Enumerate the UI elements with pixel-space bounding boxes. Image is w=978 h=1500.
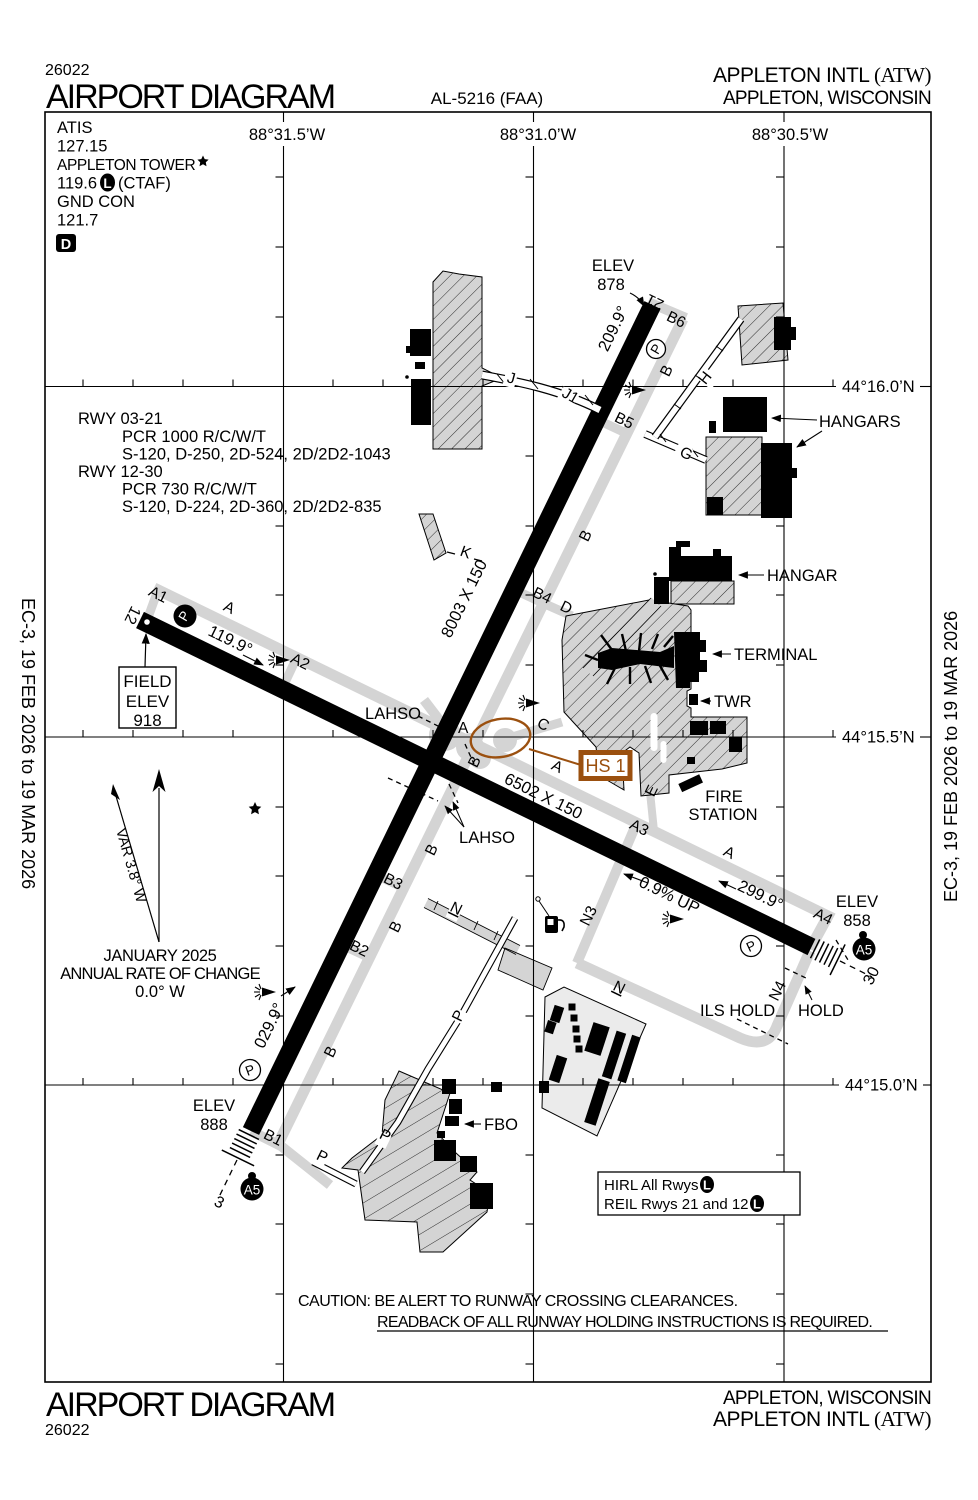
- svg-text:RWY 12-30: RWY 12-30: [78, 463, 163, 481]
- svg-text:ILS HOLD: ILS HOLD: [700, 1002, 775, 1020]
- svg-text:FBO: FBO: [484, 1116, 518, 1134]
- svg-text:LAHSO: LAHSO: [459, 829, 515, 847]
- svg-text:ATIS: ATIS: [57, 119, 92, 137]
- svg-text:ELEV: ELEV: [836, 893, 878, 911]
- svg-text:A5: A5: [244, 1183, 261, 1198]
- svg-text:ANNUAL RATE OF CHANGE: ANNUAL RATE OF CHANGE: [60, 965, 260, 983]
- svg-text:26022: 26022: [45, 62, 90, 79]
- svg-text:EC-3, 19 FEB 2026 to 19 MAR: EC-3, 19 FEB 2026 to 19 MAR 2026: [941, 611, 961, 902]
- svg-text:EC-3, 19 FEB 2026 to 19 MAR: EC-3, 19 FEB 2026 to 19 MAR 2026: [18, 598, 38, 889]
- svg-text:JANUARY 2025: JANUARY 2025: [104, 947, 217, 965]
- svg-text:127.15: 127.15: [57, 138, 107, 156]
- svg-text:AIRPORT DIAGRAM: AIRPORT DIAGRAM: [46, 1386, 334, 1424]
- svg-text:FIRE: FIRE: [705, 788, 743, 806]
- svg-text:TWR: TWR: [714, 693, 752, 711]
- svg-text:HANGAR: HANGAR: [767, 567, 838, 585]
- svg-text:HS 1: HS 1: [585, 756, 625, 776]
- svg-text:L: L: [703, 1178, 711, 1193]
- svg-text:858: 858: [843, 912, 871, 930]
- svg-text:ELEV: ELEV: [193, 1097, 235, 1115]
- svg-text:READBACK OF ALL RUNWAY HOLDING: READBACK OF ALL RUNWAY HOLDING INSTRUCTI…: [377, 1314, 872, 1331]
- svg-text:88°31.0’W: 88°31.0’W: [500, 126, 577, 144]
- svg-text:26022: 26022: [45, 1422, 90, 1439]
- svg-text:TERMINAL: TERMINAL: [734, 646, 817, 664]
- svg-text:HANGARS: HANGARS: [819, 413, 901, 431]
- svg-text:(CTAF): (CTAF): [118, 175, 171, 193]
- svg-text:44°16.0’N: 44°16.0’N: [842, 378, 915, 396]
- svg-text:121.7: 121.7: [57, 212, 98, 230]
- svg-text:S-120, D-250, 2D-524, 2D/2D2-1: S-120, D-250, 2D-524, 2D/2D2-1043: [122, 446, 391, 464]
- svg-text:LAHSO: LAHSO: [365, 705, 421, 723]
- svg-text:878: 878: [597, 276, 625, 294]
- svg-text:PCR 730 R/C/W/T: PCR 730 R/C/W/T: [122, 481, 257, 499]
- svg-text:APPLETON, WISCONSIN: APPLETON, WISCONSIN: [723, 1388, 931, 1409]
- svg-text:GND CON: GND CON: [57, 193, 135, 211]
- svg-text:0.0° W: 0.0° W: [135, 983, 185, 1001]
- svg-text:88°31.5’W: 88°31.5’W: [249, 126, 326, 144]
- svg-text:APPLETON INTL (ATW): APPLETON INTL (ATW): [713, 63, 932, 87]
- svg-text:L: L: [103, 176, 111, 191]
- svg-text:L: L: [753, 1197, 761, 1212]
- svg-text:CAUTION: BE ALERT TO RUNWAY CR: CAUTION: BE ALERT TO RUNWAY CROSSING CLE…: [298, 1293, 738, 1310]
- svg-text:A: A: [458, 720, 469, 737]
- svg-text:AL-5216 (FAA): AL-5216 (FAA): [431, 89, 543, 108]
- svg-text:RWY 03-21: RWY 03-21: [78, 410, 163, 428]
- svg-text:918: 918: [133, 711, 161, 730]
- svg-text:88°30.5’W: 88°30.5’W: [752, 126, 829, 144]
- svg-text:APPLETON TOWER: APPLETON TOWER: [57, 157, 195, 174]
- svg-text:S-120, D-224, 2D-360, 2D/2D2-8: S-120, D-224, 2D-360, 2D/2D2-835: [122, 498, 382, 516]
- svg-text:ELEV: ELEV: [592, 257, 634, 275]
- svg-text:REIL Rwys 21 and 12: REIL Rwys 21 and 12: [604, 1196, 749, 1213]
- svg-text:44°15.0’N: 44°15.0’N: [845, 1077, 918, 1095]
- svg-text:AIRPORT DIAGRAM: AIRPORT DIAGRAM: [46, 78, 334, 116]
- svg-text:D: D: [61, 237, 71, 253]
- svg-text:888: 888: [200, 1116, 228, 1134]
- svg-text:STATION: STATION: [688, 806, 757, 824]
- svg-text:A5: A5: [856, 943, 873, 958]
- svg-text:PCR 1000 R/C/W/T: PCR 1000 R/C/W/T: [122, 428, 266, 446]
- svg-text:HOLD: HOLD: [798, 1002, 844, 1020]
- svg-text:119.6: 119.6: [57, 175, 97, 193]
- svg-text:FIELD: FIELD: [123, 672, 171, 691]
- svg-text:ELEV: ELEV: [126, 692, 170, 711]
- svg-text:44°15.5’N: 44°15.5’N: [842, 729, 915, 747]
- svg-text:APPLETON INTL (ATW): APPLETON INTL (ATW): [713, 1407, 932, 1431]
- svg-text:APPLETON, WISCONSIN: APPLETON, WISCONSIN: [723, 88, 931, 109]
- svg-text:HIRL All Rwys: HIRL All Rwys: [604, 1177, 698, 1194]
